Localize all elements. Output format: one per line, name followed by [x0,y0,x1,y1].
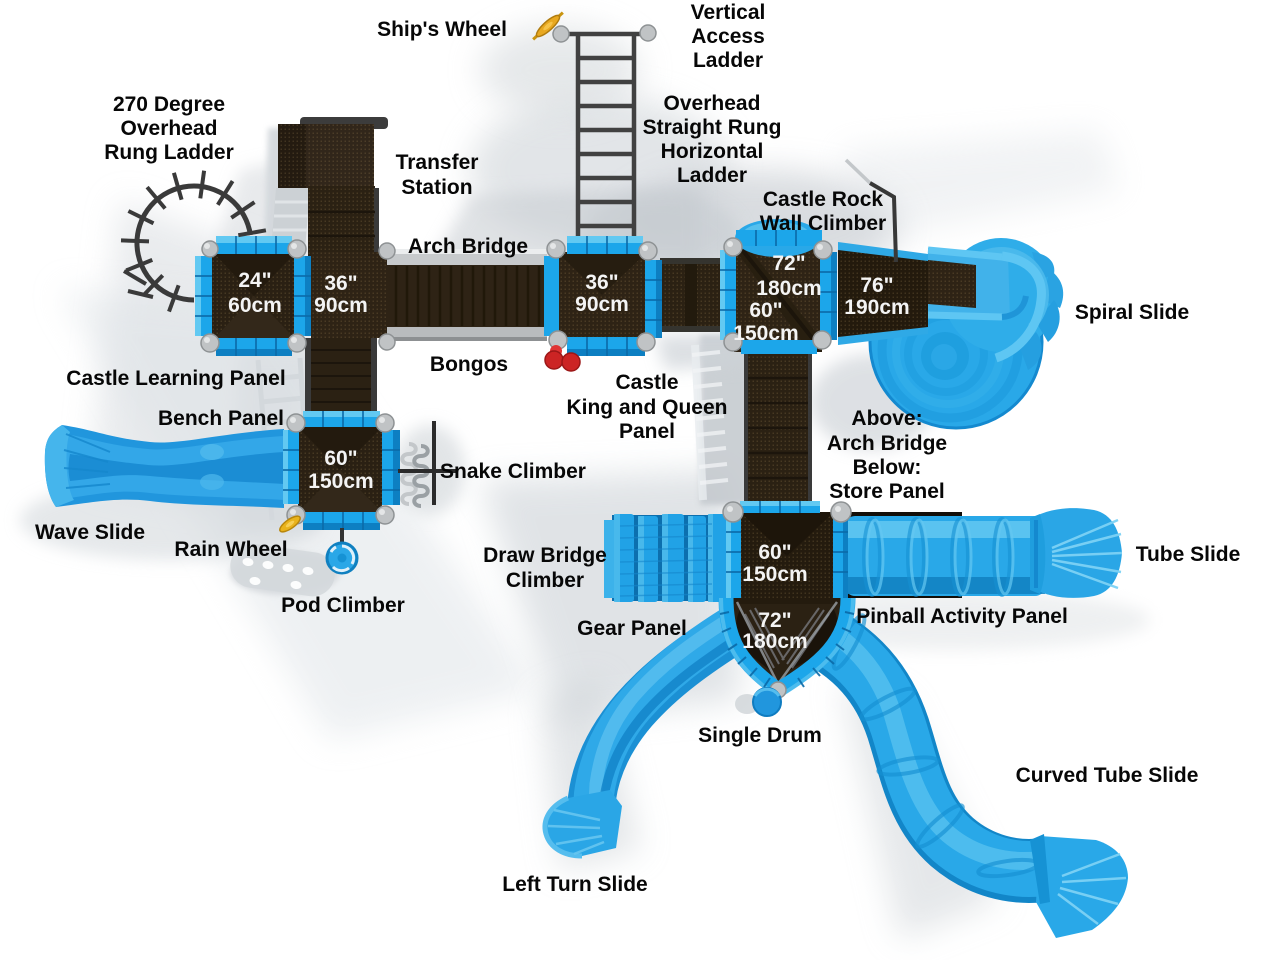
svg-text:36": 36" [585,271,618,294]
svg-text:Snake Climber: Snake Climber [440,460,586,483]
svg-text:Castle: Castle [615,371,678,394]
svg-text:90cm: 90cm [314,294,368,317]
svg-text:Curved Tube Slide: Curved Tube Slide [1016,764,1199,787]
svg-text:Pinball Activity Panel: Pinball Activity Panel [856,605,1068,628]
svg-text:270 Degree: 270 Degree [113,93,225,116]
svg-text:Store Panel: Store Panel [829,480,945,503]
svg-text:Ladder: Ladder [677,164,747,187]
svg-text:Wave Slide: Wave Slide [35,521,145,544]
svg-text:24": 24" [238,269,271,292]
svg-text:Arch Bridge: Arch Bridge [827,432,947,455]
svg-text:76": 76" [860,274,893,297]
svg-text:Ladder: Ladder [693,49,763,72]
svg-text:Castle Learning Panel: Castle Learning Panel [66,367,285,390]
svg-text:Below:: Below: [853,456,922,479]
svg-text:Arch Bridge: Arch Bridge [408,235,528,258]
svg-text:Left Turn Slide: Left Turn Slide [502,873,647,896]
svg-text:Rung Ladder: Rung Ladder [104,141,234,164]
svg-text:Vertical: Vertical [691,1,766,24]
svg-text:Transfer: Transfer [396,151,479,174]
svg-text:Ship's Wheel: Ship's Wheel [377,18,507,41]
svg-text:Panel: Panel [619,420,675,443]
svg-text:60cm: 60cm [228,294,282,317]
svg-text:Tube Slide: Tube Slide [1136,543,1241,566]
svg-text:Overhead: Overhead [121,117,218,140]
svg-text:Above:: Above: [851,407,922,430]
svg-text:180cm: 180cm [756,277,821,300]
svg-text:Gear Panel: Gear Panel [577,617,687,640]
svg-text:Station: Station [401,176,472,199]
svg-text:Wall Climber: Wall Climber [760,212,886,235]
svg-text:90cm: 90cm [575,293,629,316]
svg-text:Rain Wheel: Rain Wheel [174,538,287,561]
svg-text:Climber: Climber [506,569,584,592]
svg-text:60": 60" [749,299,782,322]
svg-text:Draw Bridge: Draw Bridge [483,544,607,567]
svg-text:Overhead: Overhead [664,92,761,115]
svg-text:Castle Rock: Castle Rock [763,188,884,211]
svg-text:72": 72" [758,609,791,632]
svg-text:150cm: 150cm [742,563,807,586]
svg-text:King and Queen: King and Queen [566,396,727,419]
svg-text:60": 60" [324,447,357,470]
svg-text:Bongos: Bongos [430,353,508,376]
svg-text:Spiral Slide: Spiral Slide [1075,301,1189,324]
svg-text:36": 36" [324,272,357,295]
svg-text:72": 72" [772,252,805,275]
svg-text:Horizontal: Horizontal [661,140,764,163]
svg-text:180cm: 180cm [742,630,807,653]
svg-text:60": 60" [758,541,791,564]
svg-text:190cm: 190cm [844,296,909,319]
svg-text:Pod Climber: Pod Climber [281,594,405,617]
svg-text:Access: Access [691,25,765,48]
svg-text:150cm: 150cm [308,470,373,493]
svg-text:Straight Rung: Straight Rung [643,116,782,139]
svg-text:150cm: 150cm [733,322,798,345]
svg-text:Bench Panel: Bench Panel [158,407,284,430]
svg-text:Single Drum: Single Drum [698,724,822,747]
